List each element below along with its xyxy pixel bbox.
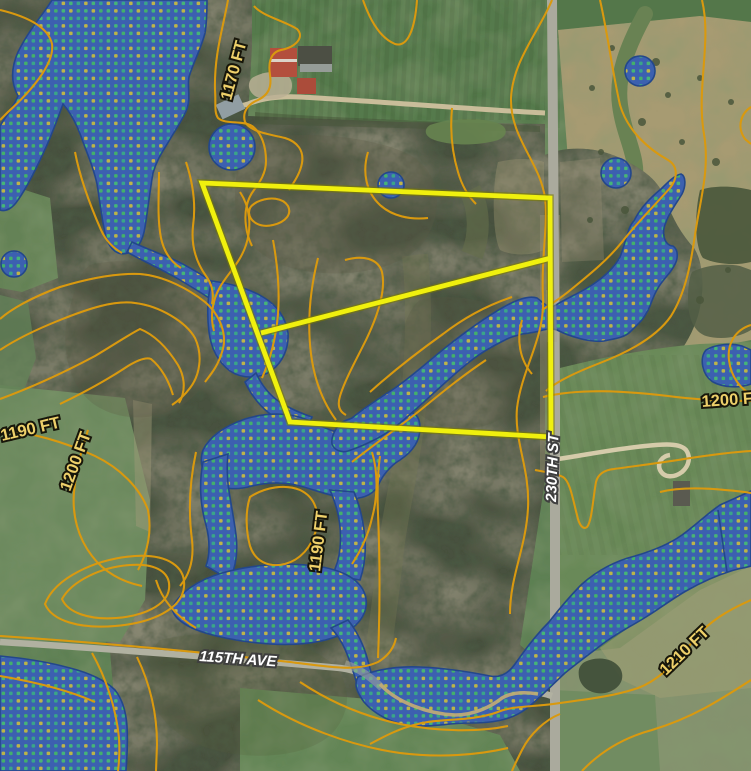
svg-text:230TH ST: 230TH ST (543, 431, 562, 503)
svg-text:1200 FT: 1200 FT (701, 389, 751, 411)
